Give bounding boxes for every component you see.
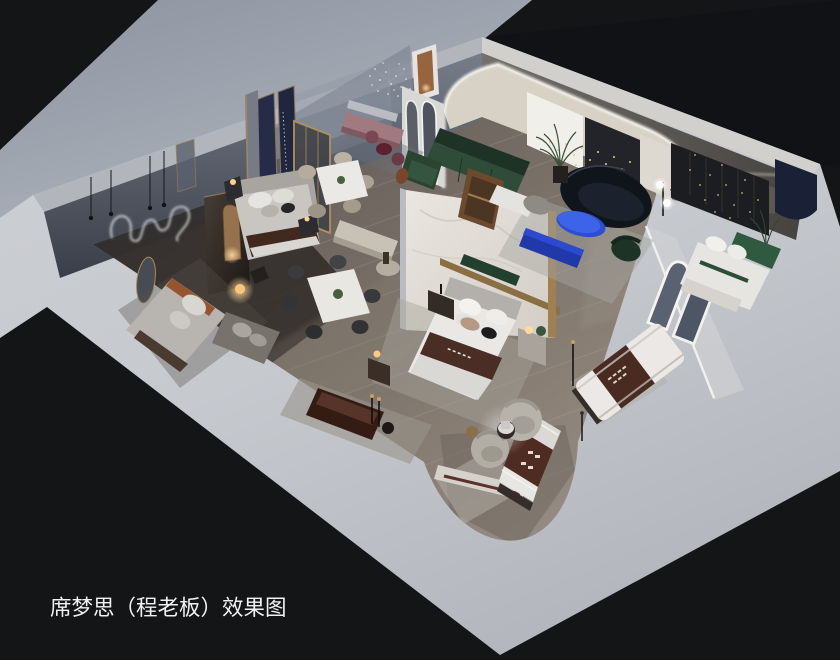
svg-text:席梦思（程老板）效果图: 席梦思（程老板）效果图 [50,596,287,620]
